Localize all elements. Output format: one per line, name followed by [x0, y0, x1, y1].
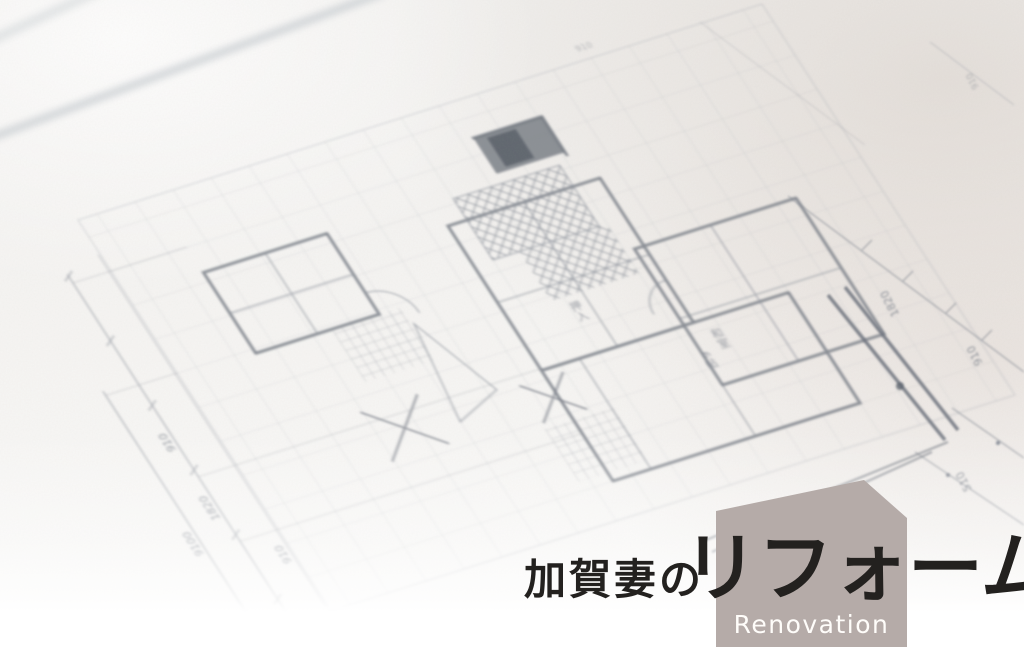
renovation-badge-label: Renovation: [716, 610, 907, 639]
hero-banner: 910 1820 9100 910 910 押入 和室 6帖: [0, 0, 1024, 647]
page-title-prefix: 加賀妻の: [524, 560, 704, 602]
page-title-main: リフォーム: [683, 531, 1024, 606]
